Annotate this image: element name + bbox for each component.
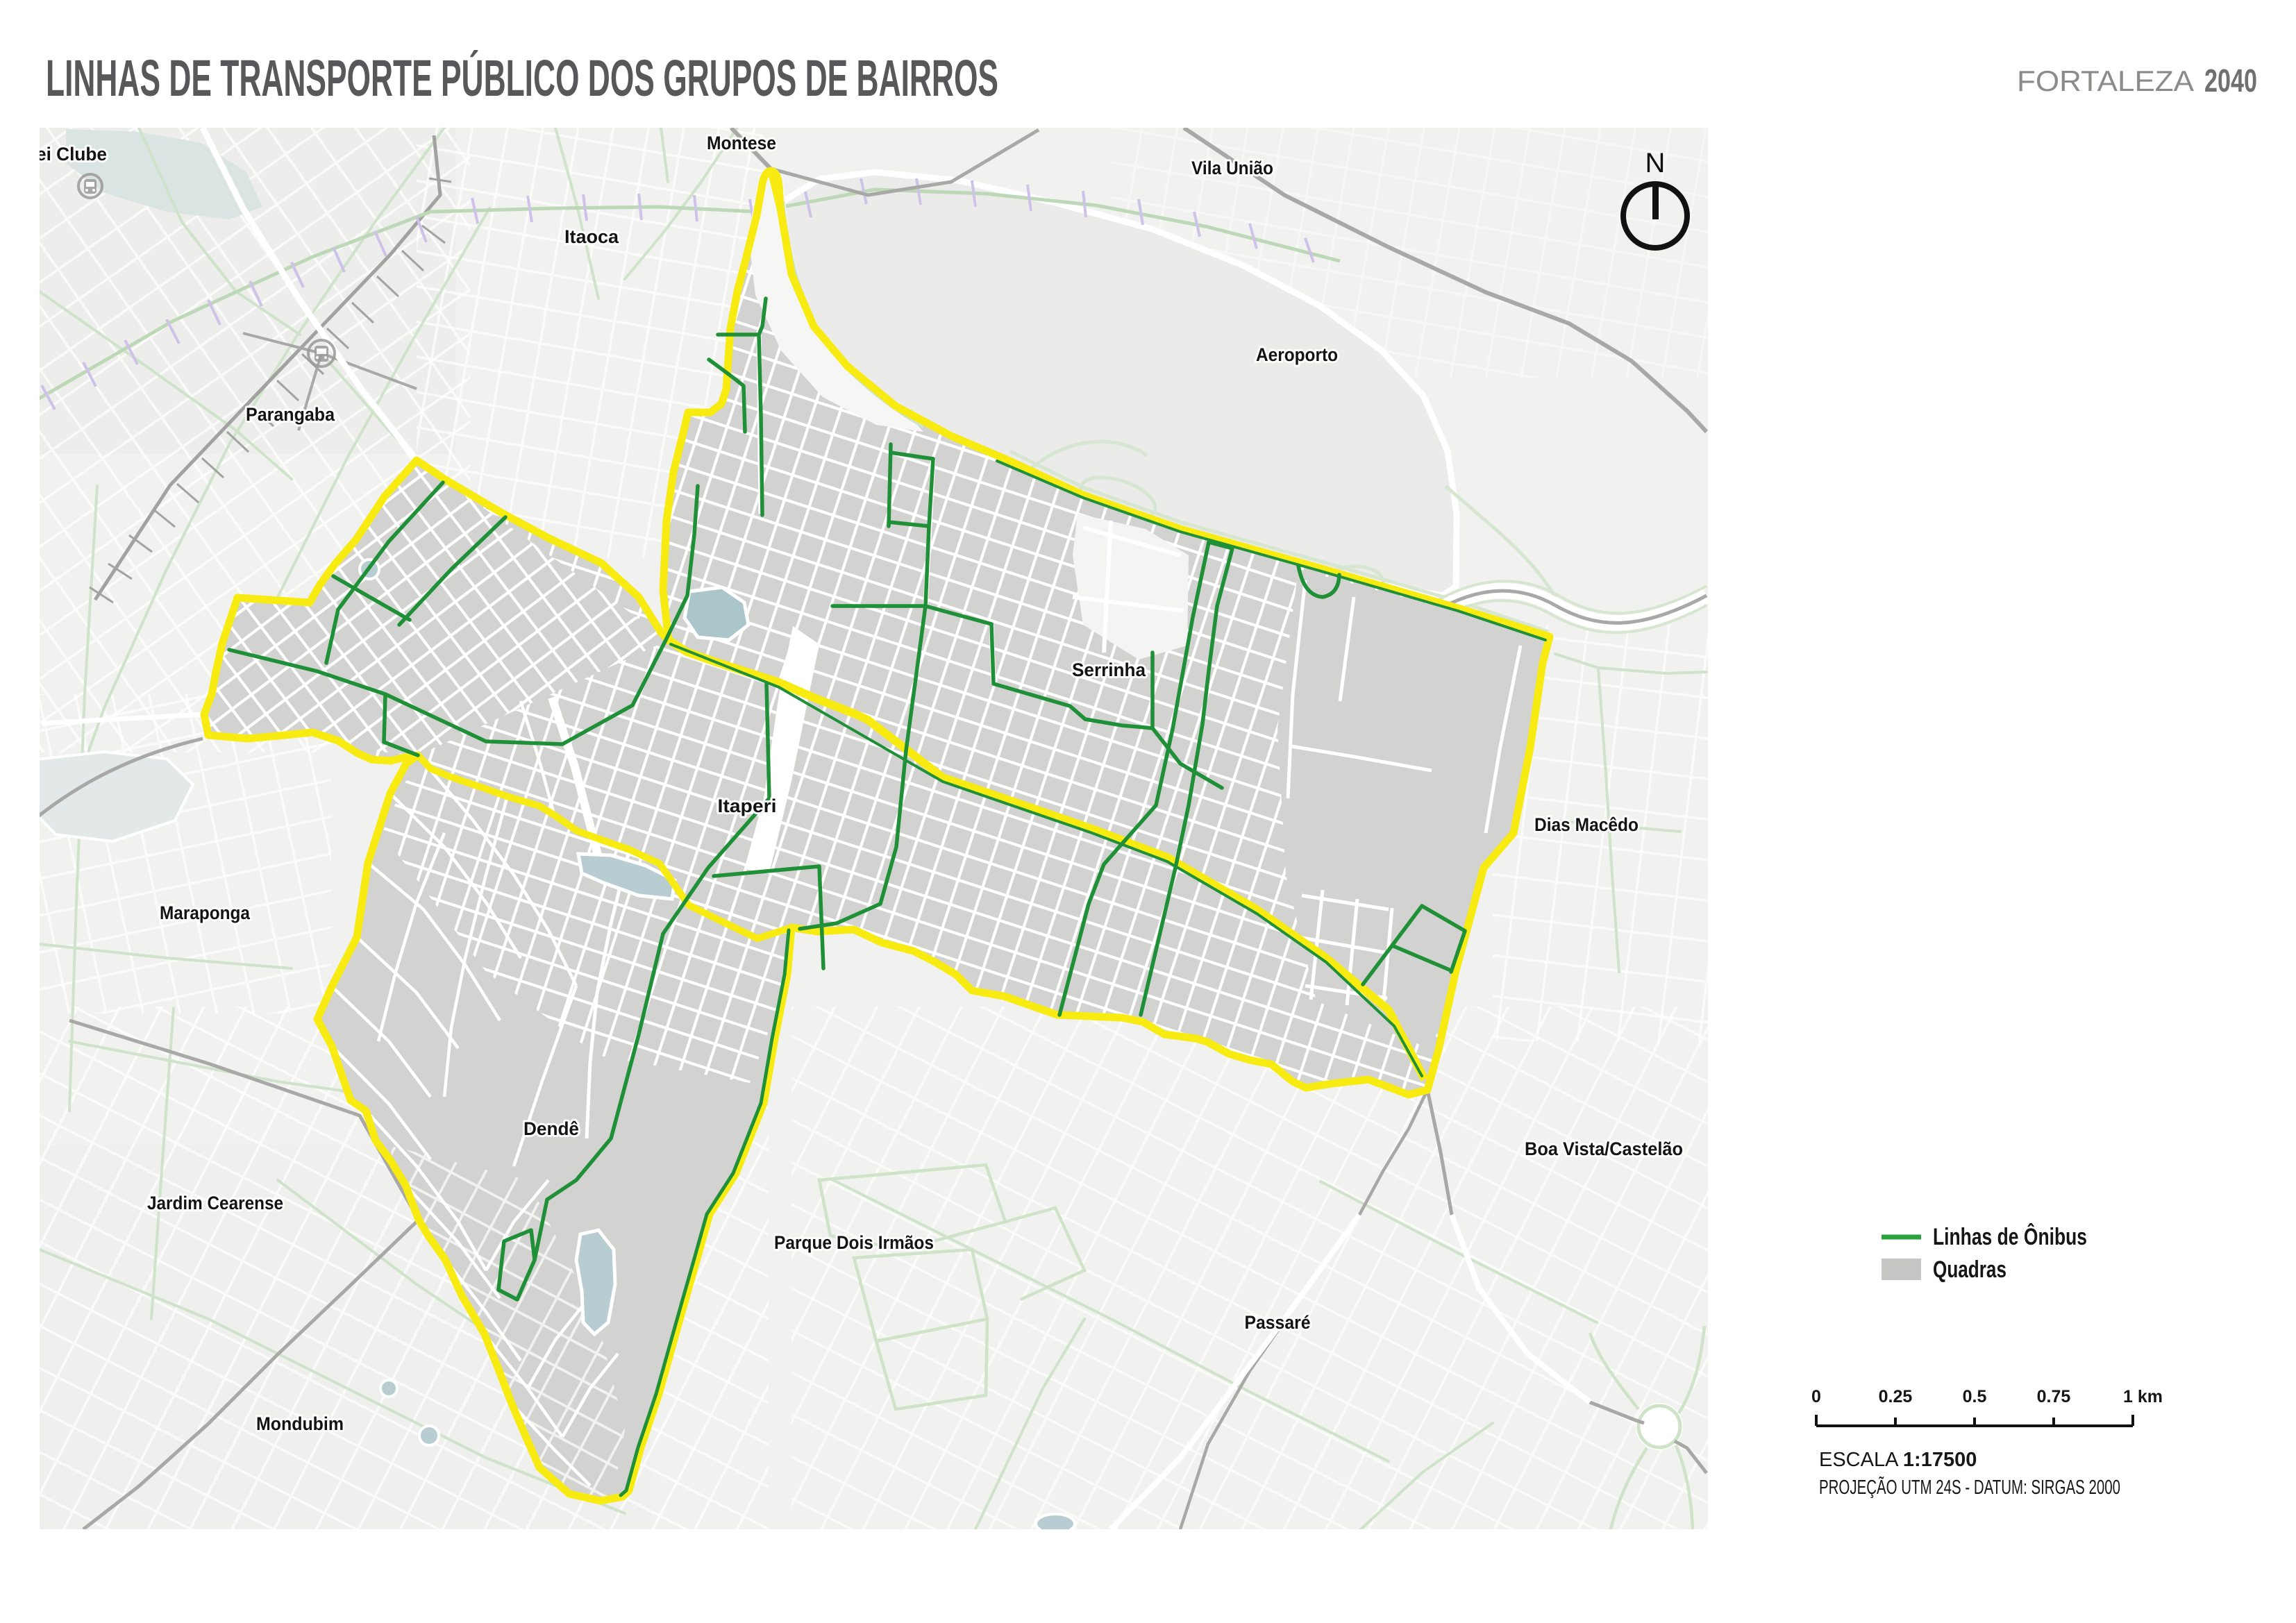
- svg-text:Parque Dois Irmãos: Parque Dois Irmãos: [774, 1232, 934, 1253]
- svg-text:Jardim Cearense: Jardim Cearense: [147, 1193, 283, 1213]
- svg-text:LINHAS DE TRANSPORTE PÚBLICO D: LINHAS DE TRANSPORTE PÚBLICO DOS GRUPOS …: [46, 49, 998, 107]
- svg-text:PROJEÇÃO UTM 24S - DATUM: SIRG: PROJEÇÃO UTM 24S - DATUM: SIRGAS 2000: [1819, 1475, 2120, 1499]
- svg-text:Dendê: Dendê: [523, 1118, 579, 1139]
- svg-text:2040: 2040: [2204, 62, 2257, 99]
- svg-text:0.75: 0.75: [2037, 1387, 2071, 1406]
- svg-text:ESCALA 1:17500: ESCALA 1:17500: [1819, 1449, 1977, 1471]
- svg-text:0: 0: [1811, 1387, 1821, 1406]
- svg-text:Vila União: Vila União: [1191, 158, 1273, 178]
- svg-text:Mondubim: Mondubim: [256, 1413, 344, 1434]
- svg-text:Parangaba: Parangaba: [246, 404, 335, 425]
- svg-text:Montese: Montese: [707, 133, 776, 153]
- svg-text:1 km: 1 km: [2123, 1387, 2163, 1406]
- svg-text:Passaré: Passaré: [1245, 1312, 1311, 1333]
- svg-text:Aeroporto: Aeroporto: [1256, 344, 1338, 365]
- svg-text:0.25: 0.25: [1879, 1387, 1913, 1406]
- svg-text:Itaperi: Itaperi: [718, 796, 777, 816]
- svg-text:Boa Vista/Castelão: Boa Vista/Castelão: [1525, 1138, 1683, 1159]
- svg-text:Quadras: Quadras: [1933, 1256, 2006, 1283]
- svg-text:Maraponga: Maraponga: [160, 902, 251, 923]
- svg-text:Serrinha: Serrinha: [1072, 659, 1146, 680]
- svg-text:Linhas de Ônibus: Linhas de Ônibus: [1933, 1223, 2087, 1250]
- svg-text:FORTALEZA: FORTALEZA: [2017, 65, 2194, 97]
- svg-text:uei Clube: uei Clube: [25, 144, 107, 165]
- svg-text:0.5: 0.5: [1963, 1387, 1987, 1406]
- svg-text:Itaoca: Itaoca: [564, 226, 619, 247]
- svg-text:N: N: [1645, 148, 1666, 178]
- svg-text:Dias Macêdo: Dias Macêdo: [1534, 814, 1639, 835]
